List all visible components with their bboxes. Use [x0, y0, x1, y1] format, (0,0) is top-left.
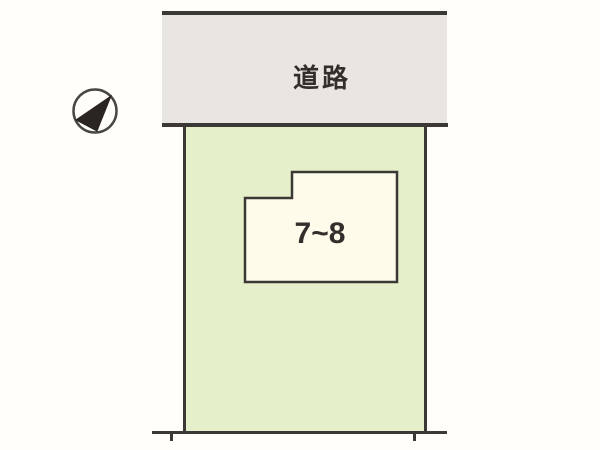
- north-arrow-icon: [70, 86, 120, 136]
- road-label: 道路: [242, 58, 402, 95]
- south-boundary-line: [152, 431, 447, 434]
- compass-needle: [76, 96, 111, 131]
- plot-diagram: 道路 7~8: [0, 0, 600, 450]
- boundary-tick-right: [413, 434, 416, 441]
- building-unit-label: 7~8: [260, 217, 380, 251]
- boundary-tick-left: [170, 434, 173, 441]
